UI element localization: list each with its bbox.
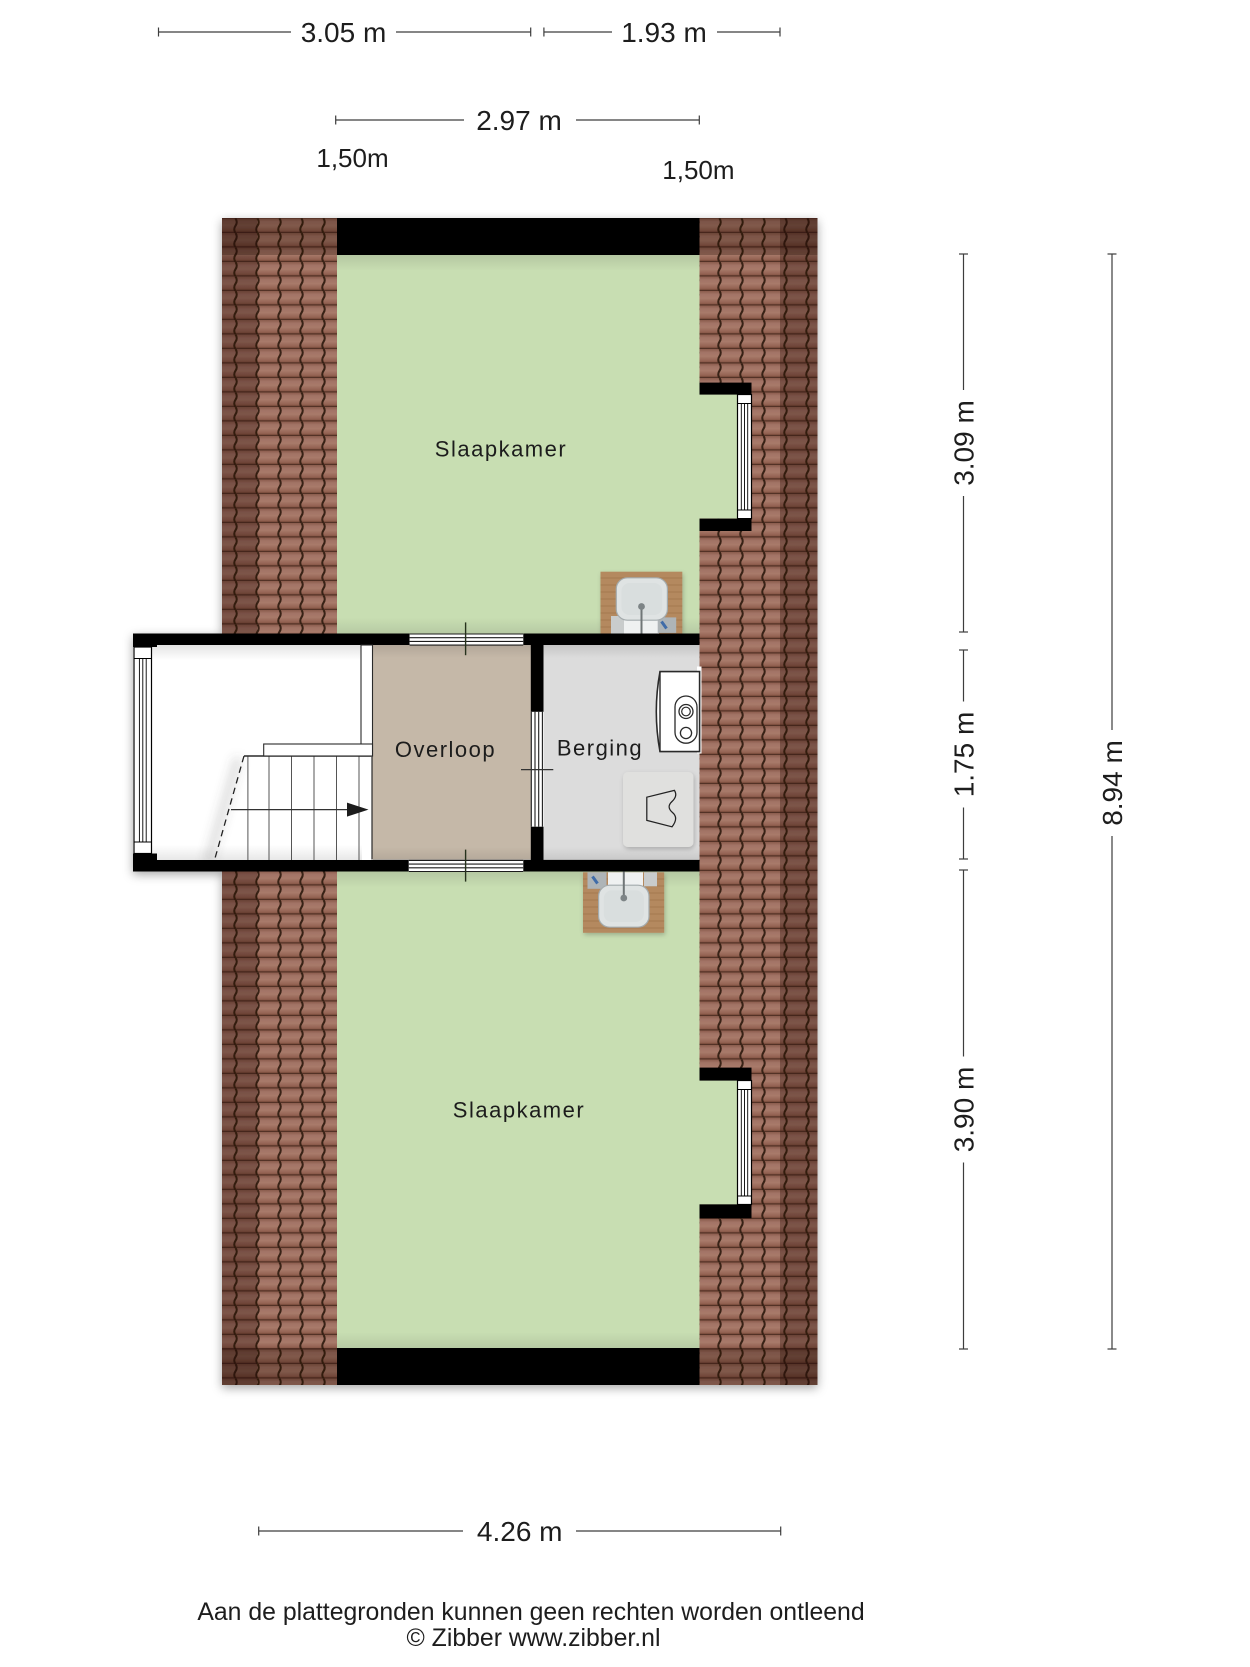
svg-text:1.75 m: 1.75 m <box>949 712 980 798</box>
svg-text:1,50m: 1,50m <box>662 155 734 185</box>
svg-text:1,50m: 1,50m <box>316 143 388 173</box>
svg-text:1.93 m: 1.93 m <box>621 17 707 48</box>
svg-text:2.97 m: 2.97 m <box>476 105 562 136</box>
svg-text:4.26 m: 4.26 m <box>477 1516 563 1547</box>
svg-text:Overloop: Overloop <box>395 737 496 762</box>
svg-text:Slaapkamer: Slaapkamer <box>453 1098 585 1123</box>
svg-text:3.90 m: 3.90 m <box>949 1067 980 1153</box>
svg-text:© Zibber www.zibber.nl: © Zibber www.zibber.nl <box>407 1625 661 1652</box>
svg-text:8.94 m: 8.94 m <box>1097 740 1128 826</box>
svg-text:Aan de plattegronden kunnen ge: Aan de plattegronden kunnen geen rechten… <box>197 1599 864 1626</box>
svg-text:Slaapkamer: Slaapkamer <box>435 437 567 462</box>
svg-text:3.09 m: 3.09 m <box>949 400 980 486</box>
svg-text:Berging: Berging <box>557 736 643 761</box>
svg-text:3.05 m: 3.05 m <box>301 17 387 48</box>
